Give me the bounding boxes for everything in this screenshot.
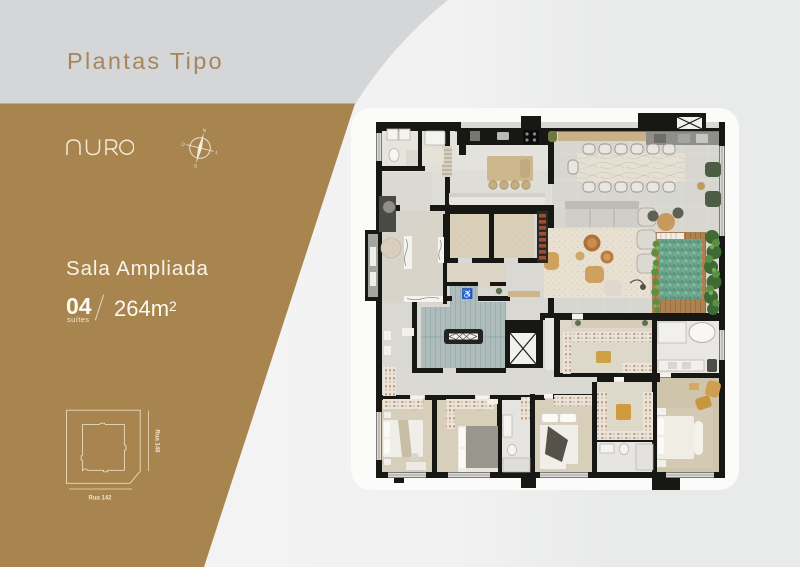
svg-text:♿: ♿ xyxy=(462,289,473,299)
